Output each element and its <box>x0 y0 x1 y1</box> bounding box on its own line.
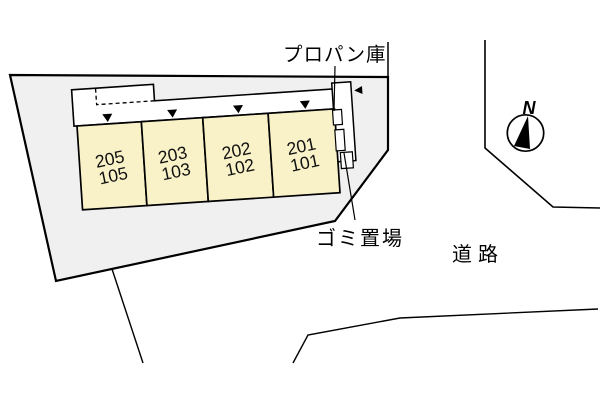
left-boundary-line <box>112 269 143 363</box>
propane-label: プロパン庫 <box>283 44 386 66</box>
garbage-area-box <box>340 152 353 169</box>
stair-landing-box <box>335 129 345 151</box>
compass-needle <box>514 116 530 149</box>
right-boundary-line <box>485 40 600 208</box>
propane-storage-box <box>333 109 343 125</box>
garbage-label: ゴミ置場 <box>316 227 404 250</box>
road-edge-line <box>293 309 598 363</box>
road-label: 道路 <box>452 243 504 266</box>
compass-north-icon: N <box>507 98 543 151</box>
site-plan: 205 105 203 103 202 102 201 101 プロパン庫 ゴミ… <box>0 0 600 400</box>
site-plan-drawing: 205 105 203 103 202 102 201 101 プロパン庫 ゴミ… <box>0 0 600 400</box>
